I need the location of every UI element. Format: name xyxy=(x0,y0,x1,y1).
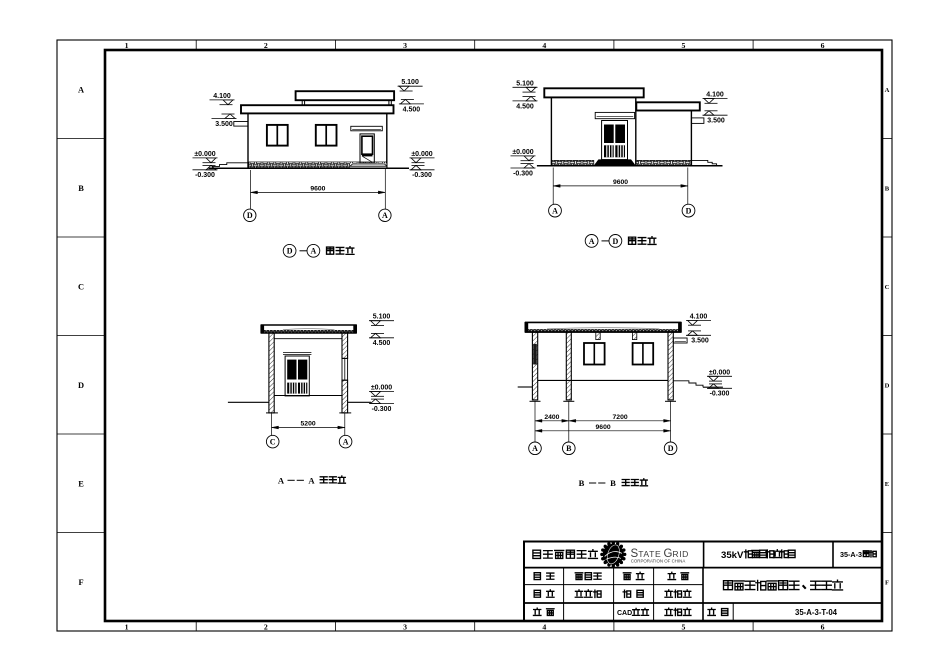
svg-text:2: 2 xyxy=(264,41,268,50)
svg-text:D: D xyxy=(668,444,674,453)
svg-text:-0.300: -0.300 xyxy=(195,172,215,179)
svg-text:4.100: 4.100 xyxy=(706,92,724,99)
svg-text:-0.300: -0.300 xyxy=(412,172,432,179)
svg-text:2: 2 xyxy=(264,622,268,631)
svg-text:A: A xyxy=(278,475,285,485)
svg-text:CORPORATION OF CHINA: CORPORATION OF CHINA xyxy=(631,559,686,564)
svg-text:-0.300: -0.300 xyxy=(710,391,730,398)
svg-text:3.500: 3.500 xyxy=(707,118,725,125)
svg-text:±0.000: ±0.000 xyxy=(512,149,533,156)
svg-text:A: A xyxy=(589,237,595,246)
svg-text:9600: 9600 xyxy=(596,424,611,431)
svg-text:4.100: 4.100 xyxy=(690,313,708,320)
svg-text:A: A xyxy=(552,206,558,215)
svg-text:6: 6 xyxy=(821,41,825,50)
svg-text:-0.300: -0.300 xyxy=(513,170,533,177)
svg-text:4.500: 4.500 xyxy=(516,103,534,110)
svg-text:D: D xyxy=(613,237,619,246)
svg-text:B: B xyxy=(78,184,84,193)
svg-text:7200: 7200 xyxy=(613,414,628,421)
svg-text:C: C xyxy=(270,437,276,446)
svg-text:C: C xyxy=(885,284,890,291)
svg-text:5.100: 5.100 xyxy=(401,79,419,86)
svg-text:E: E xyxy=(78,479,84,488)
svg-text:±0.000: ±0.000 xyxy=(709,369,730,376)
svg-text:2400: 2400 xyxy=(544,414,559,421)
svg-text:9600: 9600 xyxy=(613,179,628,186)
svg-text:3.500: 3.500 xyxy=(691,338,709,345)
svg-text:1: 1 xyxy=(125,622,129,631)
svg-text:E: E xyxy=(885,481,890,488)
svg-text:6: 6 xyxy=(821,622,825,631)
svg-text:CAD: CAD xyxy=(617,610,632,617)
svg-text:D: D xyxy=(686,206,692,215)
svg-text:5.100: 5.100 xyxy=(516,80,534,87)
svg-text:D: D xyxy=(885,382,890,389)
svg-text:D: D xyxy=(287,247,293,256)
svg-text:TATE: TATE xyxy=(638,549,661,559)
svg-text:B: B xyxy=(885,185,890,192)
svg-text:±0.000: ±0.000 xyxy=(371,385,392,392)
svg-text:F: F xyxy=(885,579,889,586)
svg-text:4.500: 4.500 xyxy=(403,106,421,113)
svg-text:35kV: 35kV xyxy=(721,550,744,561)
svg-text:±0.000: ±0.000 xyxy=(411,151,432,158)
svg-text:4: 4 xyxy=(542,622,546,631)
svg-text:B: B xyxy=(579,478,585,488)
svg-text:B: B xyxy=(566,444,572,453)
svg-text:F: F xyxy=(78,578,83,587)
svg-text:35-A-3-T-04: 35-A-3-T-04 xyxy=(795,608,838,617)
svg-text:B: B xyxy=(610,478,616,488)
svg-text:5200: 5200 xyxy=(301,421,316,428)
svg-text:A: A xyxy=(308,475,315,485)
svg-text:4.500: 4.500 xyxy=(373,340,391,347)
svg-text:4.100: 4.100 xyxy=(213,93,231,100)
svg-text:D: D xyxy=(78,381,84,390)
svg-text:1: 1 xyxy=(125,41,129,50)
svg-text:35-A-3: 35-A-3 xyxy=(840,550,862,559)
svg-text:3: 3 xyxy=(403,622,407,631)
svg-text:A: A xyxy=(885,87,890,94)
svg-text:9600: 9600 xyxy=(310,186,325,193)
svg-text:3: 3 xyxy=(403,41,407,50)
svg-text:A: A xyxy=(78,85,84,94)
svg-text:A: A xyxy=(343,437,349,446)
svg-text:5.100: 5.100 xyxy=(373,314,391,321)
svg-text:5: 5 xyxy=(682,41,686,50)
svg-text:A: A xyxy=(311,247,317,256)
svg-text:4: 4 xyxy=(542,41,546,50)
svg-text:A: A xyxy=(382,211,388,220)
svg-text:D: D xyxy=(247,211,253,220)
svg-text:RID: RID xyxy=(672,549,689,559)
svg-text:3.500: 3.500 xyxy=(215,121,233,128)
svg-text:-0.300: -0.300 xyxy=(372,406,392,413)
svg-text:A: A xyxy=(532,444,538,453)
svg-text:±0.000: ±0.000 xyxy=(194,151,215,158)
svg-text:C: C xyxy=(78,282,84,291)
svg-text:5: 5 xyxy=(682,622,686,631)
